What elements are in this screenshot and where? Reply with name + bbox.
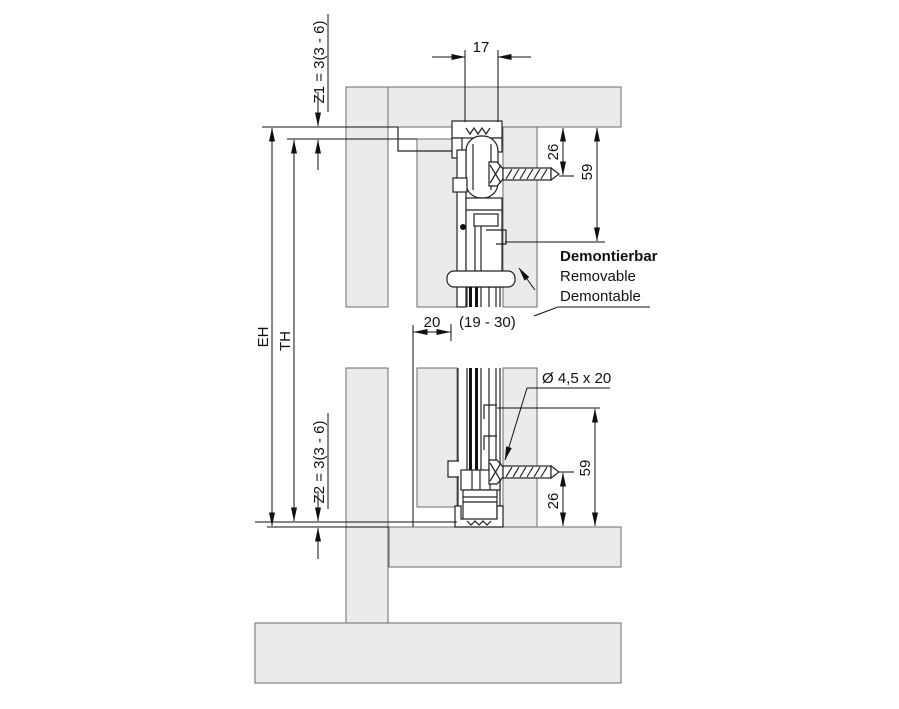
glass-line (469, 287, 472, 307)
dim-z2: Z2 = 3(3 - 6) (311, 413, 328, 559)
screw-tip (551, 466, 559, 478)
door-edge-lines-upper (467, 287, 500, 307)
mounting-strip-lower (503, 368, 537, 527)
sliding-door-section-drawing: 17 EH TH Z1 = 3(3 - 6) Z2 = 3(3 - 6) 26 … (0, 0, 899, 709)
dim-59-label: 59 (577, 460, 594, 477)
screw-tip (551, 168, 559, 180)
dim-bottom-59: 59 (577, 409, 595, 526)
top-panel (388, 87, 621, 127)
dim-bottom-26: 26 (545, 473, 563, 526)
side-column-lower (346, 368, 388, 623)
top-track-profile (452, 121, 502, 138)
dim-th: TH (277, 140, 294, 521)
guide-block (463, 490, 497, 520)
dim-eh: EH (255, 128, 272, 526)
bottom-profile-lip (448, 461, 459, 477)
side-column-upper (346, 87, 388, 307)
th-label: TH (277, 331, 294, 351)
base-panel (255, 623, 621, 683)
note-fr: Demontable (560, 288, 641, 305)
dim-z1: Z1 = 3(3 - 6) (311, 14, 328, 170)
profile-hook (484, 436, 497, 450)
note-de: Demontierbar (560, 248, 658, 265)
note-leader (534, 307, 558, 316)
carriage-bracket (453, 178, 467, 192)
carriage-screw-dot (460, 224, 466, 230)
z2-label: Z2 = 3(3 - 6) (311, 421, 328, 504)
floor-panel (389, 527, 621, 567)
screw-spec-label: Ø 4,5 x 20 (542, 370, 611, 387)
note-en: Removable (560, 268, 636, 285)
dim-59-label: 59 (579, 164, 596, 181)
glass-line (475, 287, 478, 307)
dim-26-label: 26 (545, 493, 562, 510)
dim-26-label: 26 (545, 144, 562, 161)
glass-line (475, 368, 478, 470)
carriage-adjuster (474, 214, 498, 226)
door-panel-lower (417, 368, 457, 507)
dim-top-59: 59 (579, 128, 597, 241)
removable-note: Demontierbar Removable Demontable (519, 248, 658, 316)
glass-line (469, 368, 472, 470)
technical-drawing: 17 EH TH Z1 = 3(3 - 6) Z2 = 3(3 - 6) 26 … (0, 0, 899, 709)
eh-label: EH (255, 327, 272, 348)
dim-20-range-label: (19 - 30) (459, 314, 516, 331)
dim-17-label: 17 (473, 39, 490, 56)
z1-label: Z1 = 3(3 - 6) (311, 21, 328, 104)
door-clamp-bar (447, 271, 515, 287)
profile-hook (484, 405, 497, 419)
dim-20-label: 20 (424, 314, 441, 331)
